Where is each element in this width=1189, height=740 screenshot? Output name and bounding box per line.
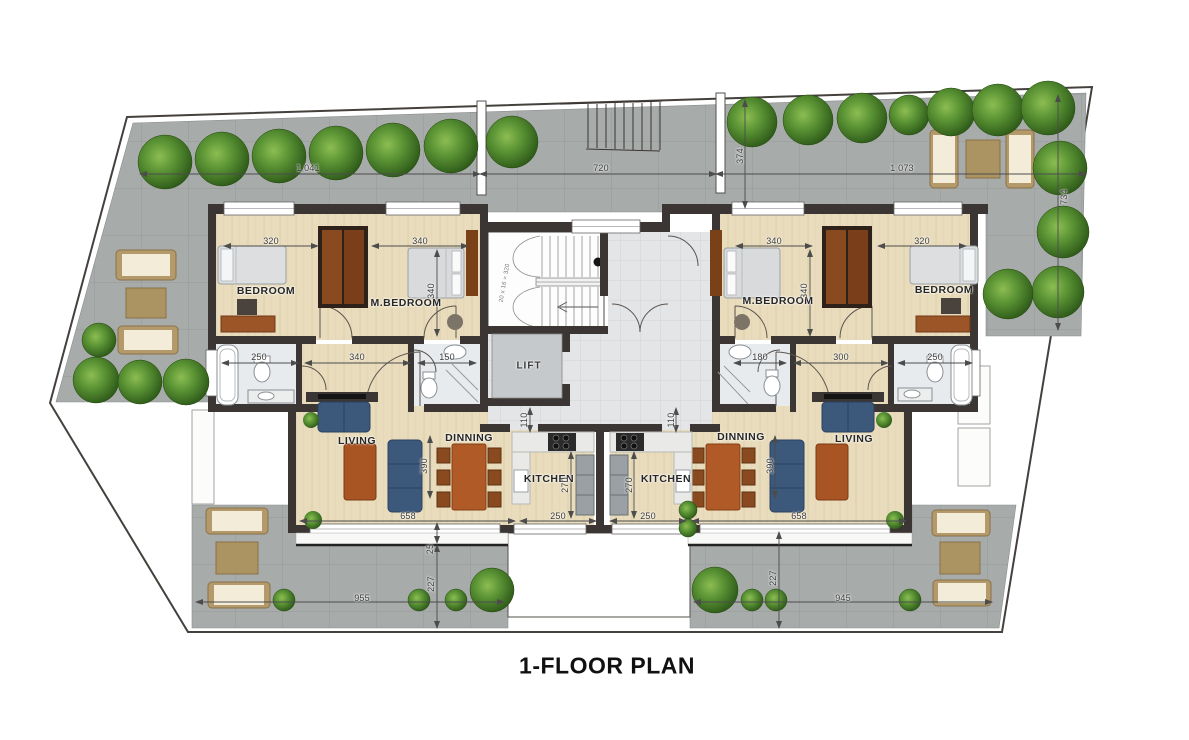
dim-right-living-d: 390 <box>765 458 775 474</box>
void-area <box>508 533 690 617</box>
party-wall-divider-right <box>716 93 725 193</box>
room-label-living-left: LIVING <box>338 435 376 447</box>
dim-bottom-left-balcony: 25 <box>425 544 435 554</box>
dim-bottom-left-w: 955 <box>354 593 370 603</box>
dim-right-living-w: 658 <box>791 511 807 521</box>
room-label-dining-right: DINNING <box>717 431 765 443</box>
dim-bottom-right-d: 227 <box>768 570 778 586</box>
floor-plan-drawing <box>0 0 1189 740</box>
dim-right-depth: 734 <box>1059 189 1069 205</box>
dim-right-kitchen-w: 250 <box>640 511 656 521</box>
dim-right-ensuite-w: 180 <box>752 352 768 362</box>
room-label-dining-left: DINNING <box>445 432 493 444</box>
dim-top-center: 720 <box>593 163 609 173</box>
dim-right-entry-d: 110 <box>666 413 676 428</box>
dim-right-hall-w: 300 <box>833 352 849 362</box>
wardrobe-right <box>822 226 872 308</box>
entry-hall <box>608 232 712 332</box>
room-label-kitchen-right: KITCHEN <box>641 473 691 485</box>
dim-right-bedroom-d: 340 <box>799 283 809 299</box>
dining-set-left <box>437 444 501 510</box>
dim-left-kitchen-d: 270 <box>560 477 570 493</box>
right-balcony-2 <box>958 428 990 486</box>
dim-right-master-w: 340 <box>766 236 782 246</box>
page-title: 1-FLOOR PLAN <box>519 653 695 680</box>
dim-top-left: 1 041 <box>296 163 320 173</box>
dim-top-depth: 374 <box>735 148 745 164</box>
room-label-living-right: LIVING <box>835 433 873 445</box>
dining-set-right <box>691 444 755 510</box>
dim-right-kitchen-d: 270 <box>624 477 634 493</box>
room-label-bedroom-left: BEDROOM <box>237 285 295 297</box>
dim-right-bath-w: 250 <box>927 352 943 362</box>
dim-left-living-d: 390 <box>419 458 429 474</box>
bed-single-left <box>218 246 286 284</box>
dim-left-entry-d: 110 <box>519 413 529 428</box>
dim-right-bedroom-w: 320 <box>914 236 930 246</box>
dim-left-ensuite-w: 150 <box>439 352 455 362</box>
dim-left-kitchen-w: 250 <box>550 511 566 521</box>
dim-top-right: 1 073 <box>890 163 914 173</box>
bed-single-right <box>910 246 978 284</box>
dim-left-bedroom-w: 320 <box>263 236 279 246</box>
room-label-bedroom-right: BEDROOM <box>915 284 973 296</box>
dim-left-bedroom-d: 340 <box>426 283 436 299</box>
party-wall-divider-left <box>477 101 486 195</box>
dim-left-hall-w: 340 <box>349 352 365 362</box>
dim-bottom-left-d: 227 <box>426 576 436 592</box>
floor-plan: BEDROOM M.BEDROOM LIVING DINNING KITCHEN… <box>0 0 1189 740</box>
room-label-lift: LIFT <box>516 361 541 372</box>
dim-left-master-w: 340 <box>412 236 428 246</box>
dim-left-bath-w: 250 <box>251 352 267 362</box>
dim-bottom-right-w: 945 <box>835 593 851 603</box>
left-balcony <box>192 410 214 504</box>
dim-left-living-w: 658 <box>400 511 416 521</box>
wardrobe-left <box>318 226 368 308</box>
